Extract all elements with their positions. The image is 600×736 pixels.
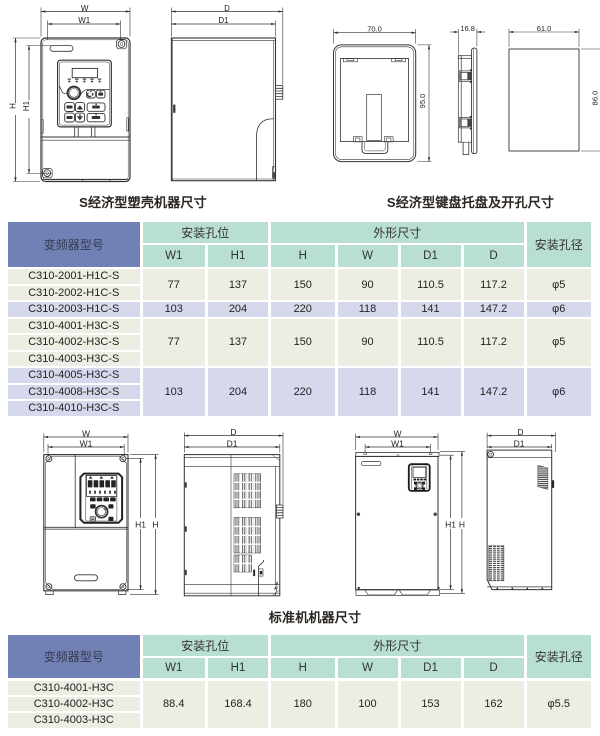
svg-text:H: H bbox=[459, 520, 465, 530]
svg-text:61.0: 61.0 bbox=[537, 24, 552, 33]
svg-text:H1: H1 bbox=[135, 520, 146, 530]
svg-text:W1: W1 bbox=[80, 438, 93, 448]
svg-text:D: D bbox=[224, 4, 230, 13]
svg-text:D1: D1 bbox=[218, 16, 229, 25]
svg-text:W: W bbox=[82, 428, 90, 438]
svg-text:H1: H1 bbox=[445, 520, 456, 530]
svg-text:16.8: 16.8 bbox=[460, 24, 475, 33]
svg-text:H1: H1 bbox=[22, 100, 31, 111]
svg-text:H: H bbox=[152, 520, 158, 530]
svg-text:70.0: 70.0 bbox=[367, 25, 382, 34]
svg-text:D: D bbox=[230, 427, 236, 437]
svg-text:W1: W1 bbox=[78, 16, 91, 25]
svg-text:D1: D1 bbox=[227, 438, 238, 448]
svg-text:86.0: 86.0 bbox=[591, 91, 600, 106]
svg-text:W: W bbox=[81, 4, 89, 13]
svg-text:D: D bbox=[517, 427, 523, 437]
svg-text:95.0: 95.0 bbox=[418, 94, 427, 109]
svg-text:D1: D1 bbox=[514, 438, 525, 448]
svg-text:W1: W1 bbox=[391, 438, 404, 448]
svg-text:W: W bbox=[393, 428, 401, 438]
svg-text:H: H bbox=[9, 103, 18, 109]
